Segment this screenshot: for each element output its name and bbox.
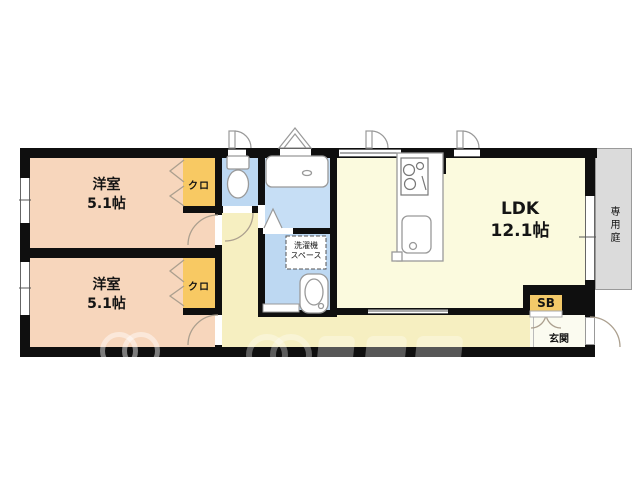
kitchen-awning-leaf-icon <box>366 131 372 148</box>
washroom-vent-peak-icon <box>279 128 311 148</box>
toilet-icon <box>227 156 249 198</box>
shoebox-front <box>530 311 562 317</box>
toilet-door-arc <box>225 213 253 241</box>
bedroom2-door-arc <box>188 315 218 345</box>
kitchen-awning-arc-icon <box>372 131 388 148</box>
shoe-box-label: SB <box>530 296 562 310</box>
garden-label: 専用庭 <box>595 190 632 260</box>
laundry-line1: 洗濯機 <box>286 241 326 251</box>
toilet-awning-arc-icon <box>235 131 251 148</box>
bathroom-folding-door-icon <box>264 209 282 228</box>
kitchen-sink-icon <box>402 216 431 253</box>
stove-icon <box>401 158 428 195</box>
bedroom1-label: 洋室 5.1帖 <box>30 176 183 214</box>
closet1-label: クロ <box>183 177 215 192</box>
bedroom2-size: 5.1帖 <box>30 295 183 314</box>
bath-counter-icon <box>263 304 299 312</box>
entrance-door-arc <box>590 317 620 347</box>
laundry-line2: スペース <box>286 251 326 261</box>
bedroom1-door-arc <box>188 215 218 245</box>
ldk-label: LDK 12.1帖 <box>440 198 600 242</box>
ldk-size: 12.1帖 <box>440 220 600 242</box>
bathtub-icon <box>300 274 328 313</box>
laundry-label: 洗濯機 スペース <box>286 241 326 261</box>
floor-plan: 洋室 5.1帖 洋室 5.1帖 LDK 12.1帖 クロ クロ 洗濯機 スペース… <box>0 0 640 480</box>
bedroom1-size: 5.1帖 <box>30 195 183 214</box>
entrance-label: 玄関 <box>538 330 580 345</box>
bedroom1-name: 洋室 <box>30 176 183 195</box>
ldk-awning-leaf-icon <box>457 131 463 148</box>
bedroom2-name: 洋室 <box>30 276 183 295</box>
bedroom2-label: 洋室 5.1帖 <box>30 276 183 314</box>
vanity-sink-icon <box>266 156 328 187</box>
closet2-label: クロ <box>183 278 215 293</box>
toilet-awning-leaf-icon <box>229 131 235 148</box>
ldk-name: LDK <box>440 198 600 220</box>
ldk-awning-arc-icon <box>463 131 479 148</box>
